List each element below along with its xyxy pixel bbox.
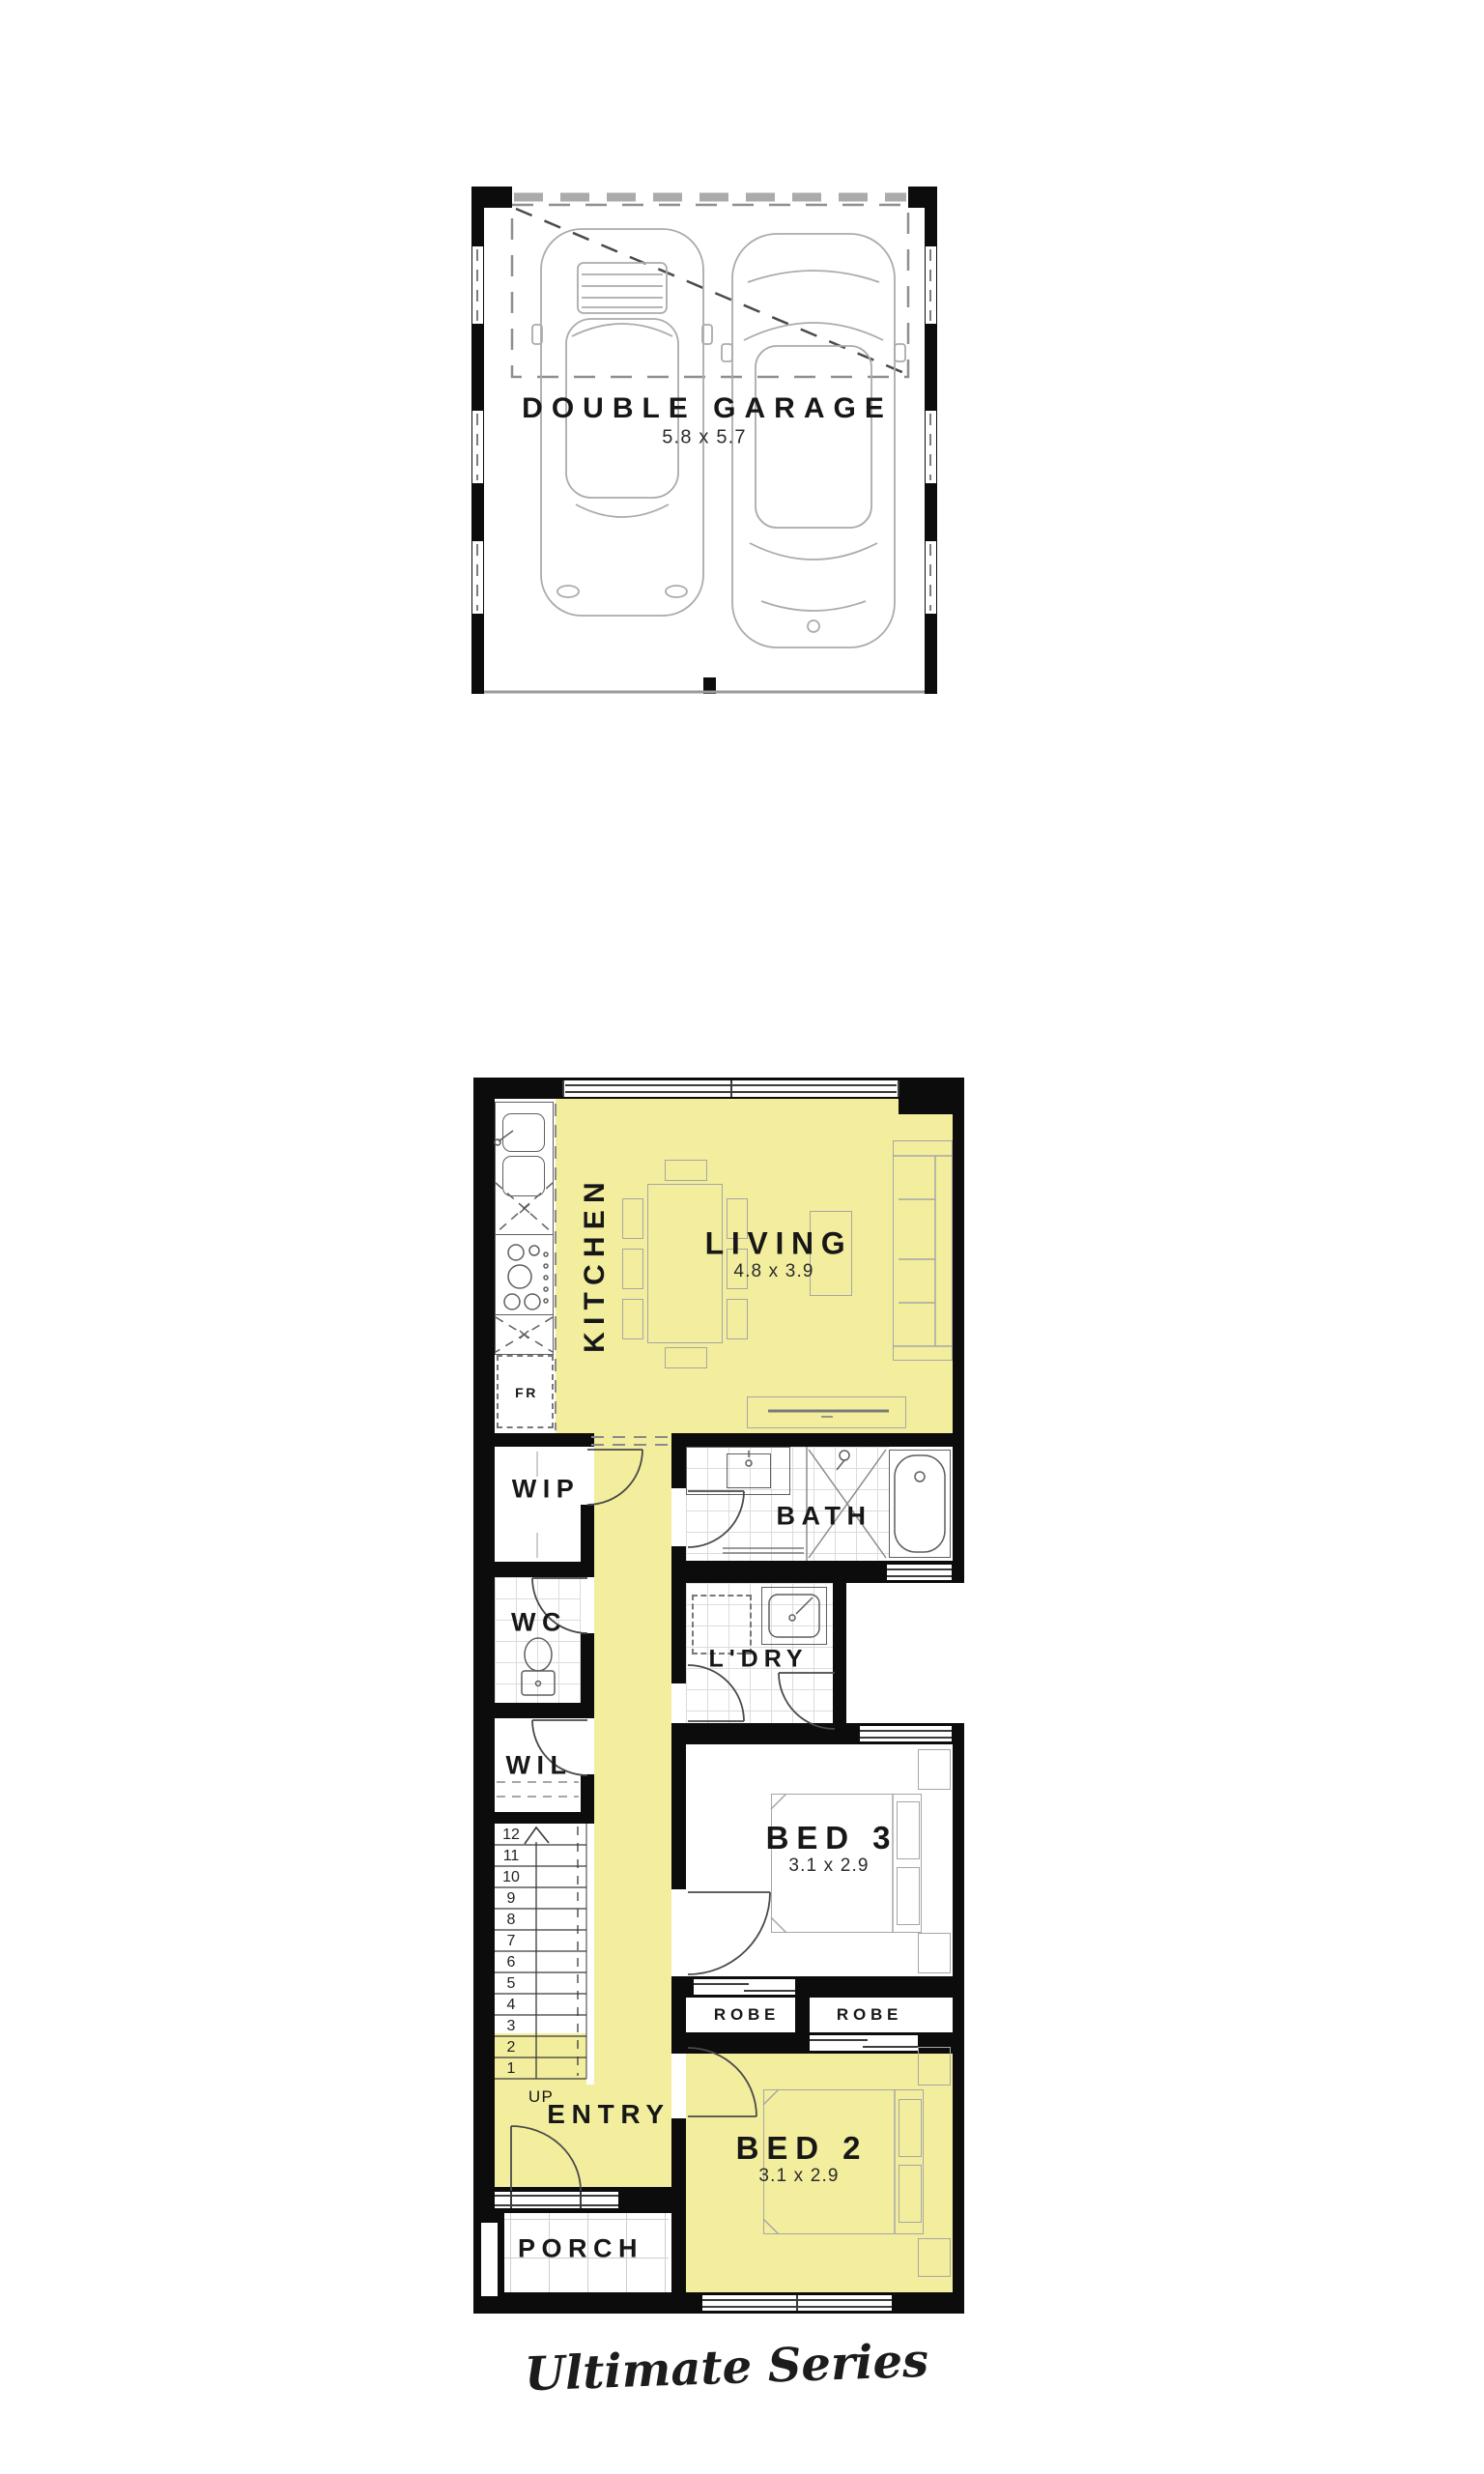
wall-living-bath (671, 1433, 964, 1447)
bed2-label: BED 2 (736, 2130, 869, 2167)
living-label: LIVING (705, 1226, 853, 1262)
bath-vanity-sink (727, 1453, 771, 1488)
kitchen-sink-basin (502, 1113, 545, 1152)
stair-step-number: 5 (495, 1975, 528, 1993)
stair-step-number: 10 (495, 1869, 528, 1886)
stair-step-number: 12 (495, 1827, 528, 1844)
dining-chair (665, 1160, 707, 1181)
robe-left-label: ROBE (714, 2005, 780, 2025)
sofa (893, 1140, 953, 1361)
garage-right-wall-gap (926, 246, 936, 324)
bed3-side-table (918, 1933, 951, 1973)
bed2-pillow (899, 2165, 922, 2223)
wall-bath-ldry (671, 1561, 964, 1583)
wall-bottom (473, 2292, 964, 2314)
kitchen-sink-basin (502, 1156, 545, 1196)
bed3-label: BED 3 (766, 1820, 899, 1856)
dining-chair (665, 1347, 707, 1368)
cooktop-box (495, 1234, 554, 1315)
wall-leftrooms-east-b (581, 1505, 594, 1577)
wall-top (473, 1078, 964, 1099)
wall-right-lower (953, 1723, 964, 2314)
wall-wip-wc (473, 1562, 594, 1577)
garage-wall-top-left-corner (471, 187, 512, 208)
stair-step-number: 3 (495, 2018, 528, 2035)
hallway-highlight (594, 1433, 671, 2085)
floorplan-page: DOUBLE GARAGE 5.8 x 5.7 (0, 0, 1484, 2474)
stair-step-number: 9 (495, 1890, 528, 1908)
bed2-pillow (899, 2099, 922, 2157)
wall-left (473, 1078, 495, 2191)
bed3-pillow (897, 1801, 920, 1859)
wall-right-upper (953, 1078, 964, 1583)
wall-bed3-north (671, 1723, 964, 1744)
wall-kitchen-wip (473, 1433, 594, 1447)
wall-ldry-east (833, 1583, 846, 1744)
wall-robe-north (671, 1976, 964, 1998)
wall-leftrooms-east-a (581, 1433, 594, 1447)
garage-left-wall-gap (472, 246, 483, 324)
garage-label: DOUBLE GARAGE (522, 392, 893, 425)
series-title: Ultimate Series (524, 2334, 929, 2402)
bed3-dimensions: 3.1 x 2.9 (788, 1855, 869, 1877)
laundry-trough (761, 1587, 827, 1645)
garage-dimensions: 5.8 x 5.7 (662, 427, 747, 449)
dining-chair (727, 1299, 748, 1339)
stair-step-number: 6 (495, 1954, 528, 1971)
bed2-dimensions: 3.1 x 2.9 (758, 2166, 839, 2187)
dining-chair (622, 1299, 643, 1339)
dining-chair (622, 1198, 643, 1239)
up-label: UP (528, 2087, 554, 2107)
bed3-door (688, 1892, 770, 1974)
wall-entry-porch (473, 2187, 676, 2213)
wc-label: WC (511, 1608, 567, 1638)
wall-robe-divider (795, 1976, 810, 2054)
wall-leftrooms-east-c (581, 1633, 594, 1718)
stair-step-number: 1 (495, 2060, 528, 2078)
garage-left-wall-gap (472, 411, 483, 483)
wall-wil-stairs (473, 1812, 594, 1824)
wall-leftrooms-east-d (581, 1774, 594, 1824)
bed3-side-table (918, 1749, 951, 1790)
stair-step-number: 2 (495, 2039, 528, 2057)
stair-step-number: 4 (495, 1997, 528, 2014)
wall-wc-wil (473, 1703, 594, 1718)
wc-floor-tiles (495, 1577, 581, 1703)
tv-unit (747, 1396, 906, 1428)
ldry-label: L'DRY (708, 1646, 808, 1674)
wip-label: WIP (512, 1475, 580, 1505)
stair-step-number: 7 (495, 1933, 528, 1950)
fridge-label: FR (515, 1385, 538, 1400)
wall-central-e (671, 2118, 686, 2314)
living-dimensions: 4.8 x 3.9 (733, 1261, 813, 1282)
garage-right-wall-gap (926, 411, 936, 483)
kitchen-label: KITCHEN (579, 1175, 612, 1353)
porch-label: PORCH (518, 2234, 643, 2264)
bed2-side-table (918, 2238, 951, 2277)
porch-pier-slot (481, 2223, 498, 2296)
dining-chair (622, 1249, 643, 1289)
entry-label: ENTRY (547, 2099, 670, 2130)
bathtub (889, 1450, 951, 1558)
dining-table (647, 1184, 723, 1343)
bed2-side-table (918, 2047, 951, 2086)
robe-right-label: ROBE (837, 2005, 902, 2025)
garage-left-wall-gap (472, 541, 483, 614)
bed3-pillow (897, 1867, 920, 1925)
wall-central-c (671, 1744, 686, 1889)
wil-label: WIL (506, 1751, 573, 1781)
garage-bottom-pier (925, 676, 937, 694)
garage-wall-top-right-corner (908, 187, 937, 208)
bath-label: BATH (777, 1502, 872, 1532)
garage-bottom-pier (703, 677, 716, 694)
stair-step-number: 11 (495, 1848, 528, 1865)
stair-step-number: 8 (495, 1912, 528, 1929)
garage-right-wall-gap (926, 541, 936, 614)
garage-bottom-pier (471, 676, 484, 694)
car-right (722, 234, 905, 647)
